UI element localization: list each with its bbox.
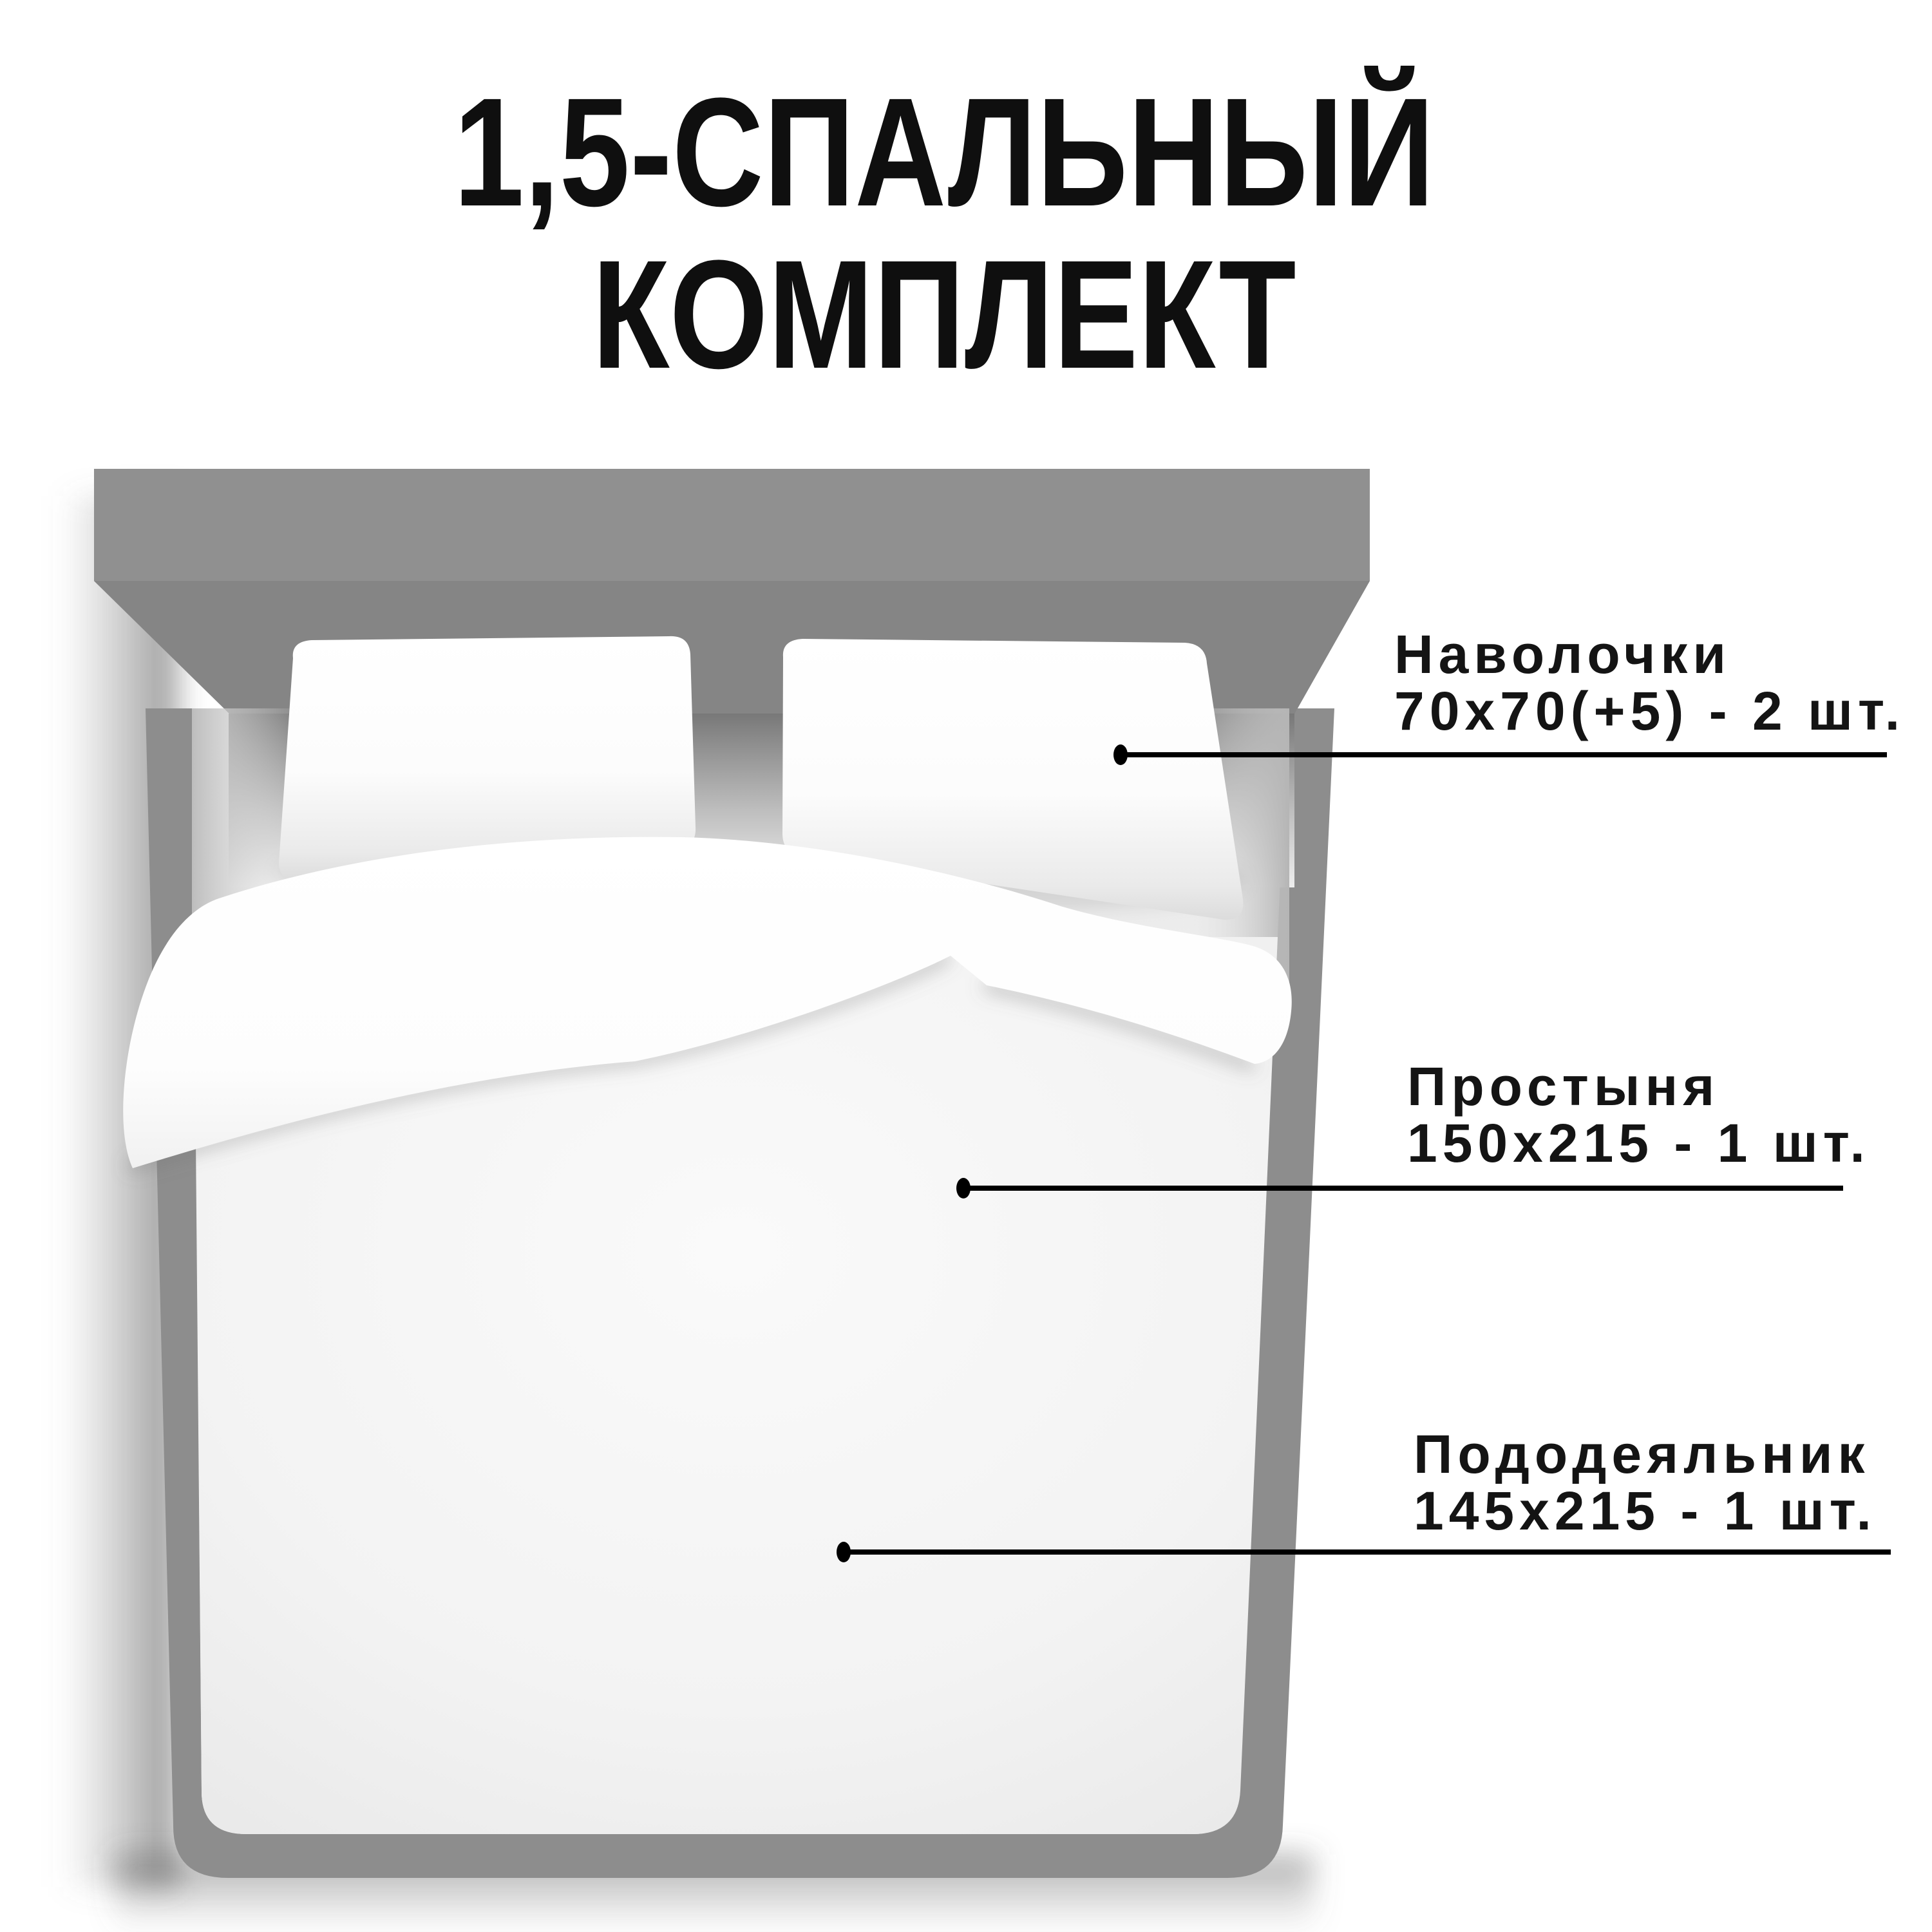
annotation-sheet-label: Простыня bbox=[1407, 1058, 1870, 1115]
infographic-canvas: 1,5-СПАЛЬНЫЙ КОМПЛЕКТ bbox=[0, 0, 1932, 1932]
annotation-pillowcases: Наволочки 70х70(+5) - 2 шт. bbox=[1394, 626, 1905, 739]
callout-dot-pillowcases bbox=[1113, 744, 1128, 765]
annotation-sheet: Простыня 150х215 - 1 шт. bbox=[1407, 1058, 1870, 1171]
annotation-pillowcases-label: Наволочки bbox=[1394, 626, 1905, 683]
callout-dot-duvet-cover bbox=[837, 1542, 851, 1562]
annotation-duvet-cover-label: Пододеяльник bbox=[1414, 1426, 1877, 1482]
annotation-duvet-cover: Пододеяльник 145х215 - 1 шт. bbox=[1414, 1426, 1877, 1539]
annotation-pillowcases-size: 70х70(+5) - 2 шт. bbox=[1394, 683, 1905, 739]
annotation-duvet-cover-size: 145х215 - 1 шт. bbox=[1414, 1482, 1877, 1539]
annotation-sheet-size: 150х215 - 1 шт. bbox=[1407, 1115, 1870, 1171]
callout-dot-sheet bbox=[956, 1178, 971, 1198]
bed-illustration bbox=[0, 0, 1932, 1932]
